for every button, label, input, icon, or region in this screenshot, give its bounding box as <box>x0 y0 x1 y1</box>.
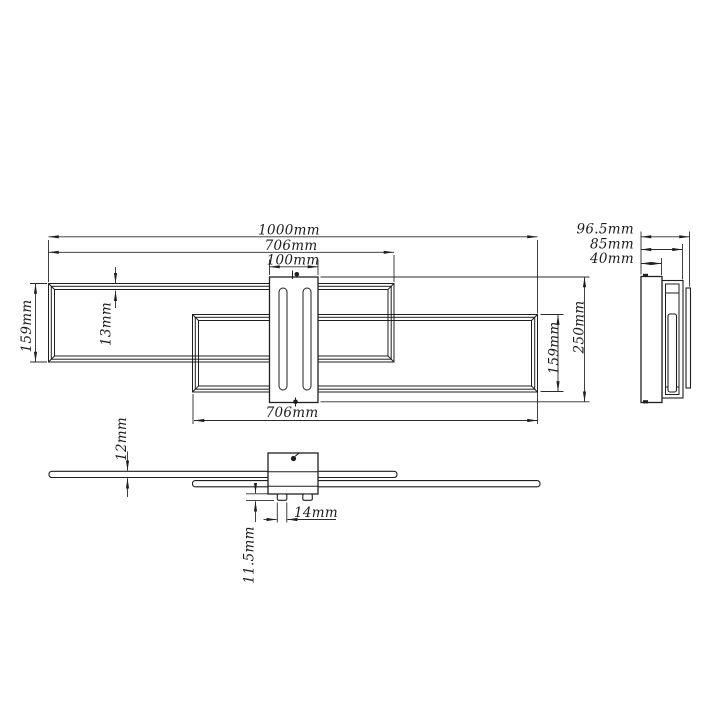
side-view: 96.5mm 85mm 40mm <box>577 222 691 404</box>
side-back-frame-edge <box>686 288 691 388</box>
front-canopy <box>270 271 319 407</box>
side-led-channel <box>668 314 677 392</box>
dim-foot-height: 11.5mm <box>242 486 275 584</box>
drawing-canvas: 1000mm 706mm 100mm 159mm 13mm <box>0 0 720 720</box>
dim-side-total-depth: 96.5mm <box>577 222 690 238</box>
dim-label-right-frame-height: 159mm <box>547 322 563 375</box>
side-bottom-screw <box>643 400 648 403</box>
dim-bottom-frame-length: 706mm <box>193 394 538 424</box>
bottom-view: 12mm 11.5mm 14mm <box>49 417 540 584</box>
bottom-right-frame-bar <box>193 481 541 487</box>
dim-right-frame-height: 159mm <box>541 315 564 392</box>
dim-label-foot-height: 11.5mm <box>242 526 258 583</box>
canopy-bottom-screw <box>293 400 298 405</box>
side-profile <box>641 274 691 404</box>
dim-label-bottom-frame-length: 706mm <box>266 405 319 421</box>
dim-label-total-height: 250mm <box>572 301 588 355</box>
dim-label-total-length: 1000mm <box>258 223 320 239</box>
canopy-top-screw <box>295 272 300 277</box>
dim-label-profile-thickness: 12mm <box>114 417 130 461</box>
front-right-frame <box>193 315 538 393</box>
side-top-screw <box>643 274 648 277</box>
bottom-left-frame-bar <box>49 471 397 477</box>
dim-label-side-canopy-depth: 40mm <box>589 251 634 267</box>
dim-profile-width: 13mm <box>99 267 116 346</box>
dim-profile-thickness: 12mm <box>114 417 130 497</box>
dim-foot-width: 14mm <box>264 503 338 523</box>
dim-label-canopy-width: 100mm <box>267 253 320 269</box>
bottom-canopy <box>268 453 318 501</box>
dim-label-foot-width: 14mm <box>294 505 338 521</box>
lamp-technical-drawing: 1000mm 706mm 100mm 159mm 13mm <box>0 0 720 720</box>
mount-foot-right <box>303 494 313 500</box>
side-canopy-section <box>641 277 662 403</box>
front-view: 1000mm 706mm 100mm 159mm 13mm <box>19 223 590 425</box>
dim-label-left-frame-height: 159mm <box>19 300 35 353</box>
cable-entry-dot <box>291 456 296 461</box>
dim-top-frame-length: 706mm <box>49 238 395 282</box>
dim-left-frame-height: 159mm <box>19 284 47 363</box>
dim-label-side-total-depth: 96.5mm <box>577 222 634 238</box>
mount-foot-left <box>277 494 287 500</box>
dim-side-canopy-depth: 40mm <box>589 251 661 267</box>
dim-label-profile-width: 13mm <box>99 302 115 346</box>
